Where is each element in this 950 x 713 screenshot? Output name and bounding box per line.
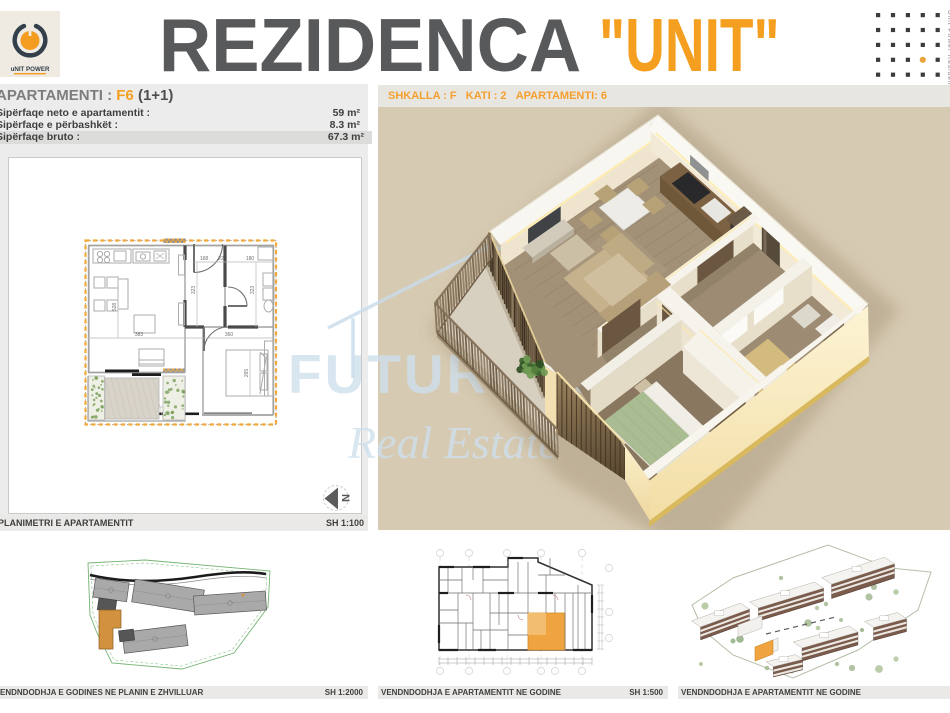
svg-text:N: N [339, 494, 351, 502]
svg-text:168: 168 [200, 256, 209, 262]
svg-text:360: 360 [225, 332, 234, 338]
svg-text:383: 383 [135, 332, 144, 338]
svg-text:Unit Power Residence: Unit Power Residence [946, 10, 950, 90]
svg-text:22: 22 [218, 256, 224, 262]
svg-text:180: 180 [246, 256, 255, 262]
svg-text:528: 528 [112, 303, 118, 312]
svg-text:265: 265 [244, 369, 250, 378]
svg-text:323: 323 [250, 286, 256, 295]
svg-text:323: 323 [191, 286, 197, 295]
